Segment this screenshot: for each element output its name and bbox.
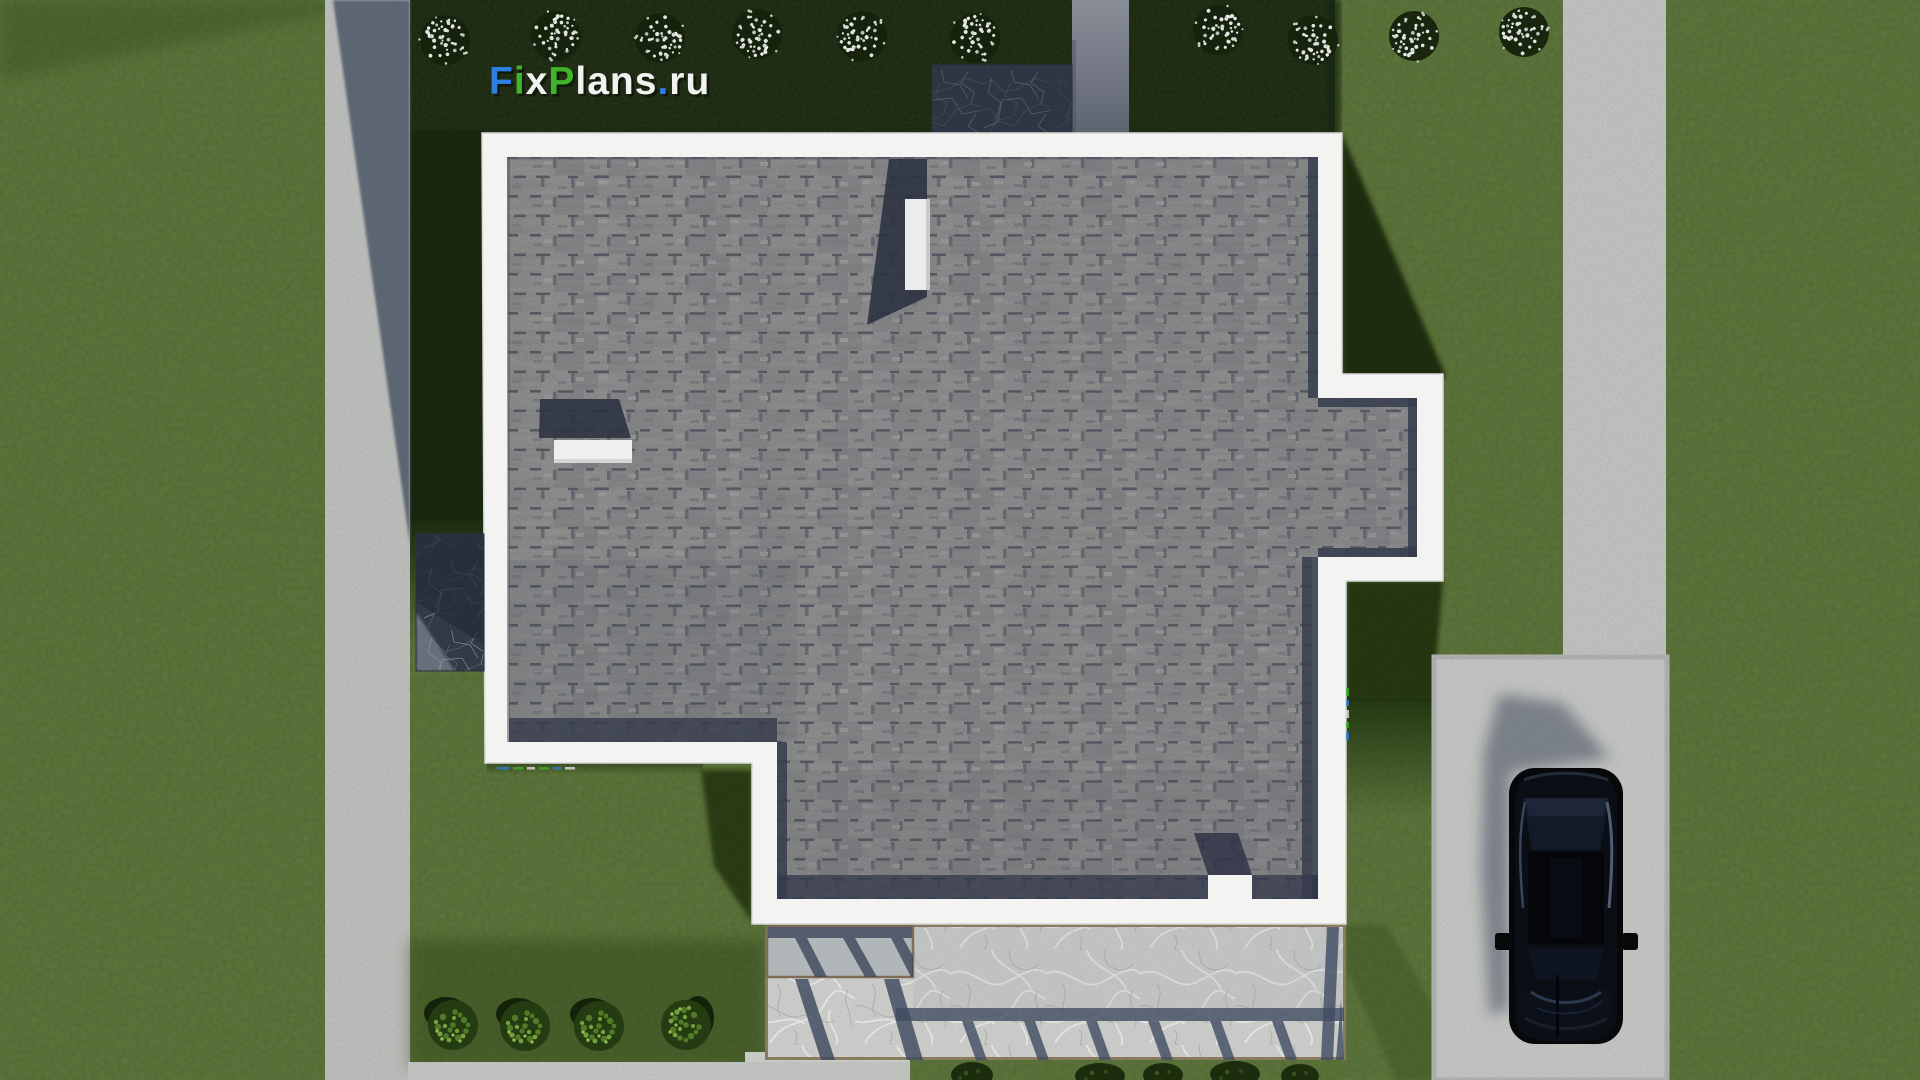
svg-text:FixPlans.ru: FixPlans.ru	[489, 60, 710, 103]
